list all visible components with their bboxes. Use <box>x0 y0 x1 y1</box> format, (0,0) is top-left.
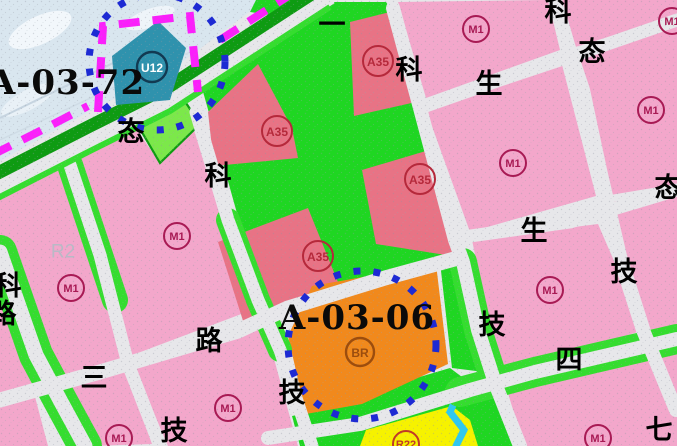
zoning-map: M1M1M1M1M1M1M1M1M1M1A35A35A35A35U12BRR22… <box>0 0 677 446</box>
svg-text:M1: M1 <box>63 283 78 295</box>
svg-text:M1: M1 <box>643 105 658 117</box>
road-name-char-3: 科 <box>545 0 572 27</box>
road-name-char-13: 路 <box>196 325 224 356</box>
svg-text:R22: R22 <box>396 439 416 446</box>
svg-text:BR: BR <box>351 346 369 360</box>
road-name-char-12: 三 <box>81 363 108 393</box>
svg-text:A35: A35 <box>409 173 431 187</box>
svg-text:A35: A35 <box>266 125 288 139</box>
svg-text:A35: A35 <box>367 55 389 69</box>
svg-text:M1: M1 <box>169 231 184 243</box>
road-name-char-9: 技 <box>611 257 638 287</box>
road-name-char-15: 技 <box>279 378 306 408</box>
road-name-char-7: 态 <box>655 173 677 203</box>
faint-labels-layer: R2 <box>51 242 75 263</box>
svg-text:M1: M1 <box>505 158 520 170</box>
road-name-char-6: 科 <box>205 161 232 191</box>
svg-text:M1: M1 <box>220 403 235 415</box>
road-name-char-4: 态 <box>579 37 606 67</box>
road-name-char-11: 路 <box>0 298 18 329</box>
svg-text:M1: M1 <box>664 16 677 28</box>
zoning-map-viewport[interactable]: M1M1M1M1M1M1M1M1M1M1A35A35A35A35U12BRR22… <box>0 0 677 446</box>
svg-text:M1: M1 <box>111 433 126 445</box>
svg-text:M1: M1 <box>590 433 605 445</box>
road-name-char-2: 科 <box>396 55 423 85</box>
zone-callout-a-03-06: A-03-06 <box>278 298 435 338</box>
road-name-char-8: 生 <box>521 216 548 246</box>
svg-text:M1: M1 <box>542 285 557 297</box>
road-name-char-16: 技 <box>479 310 506 340</box>
road-name-char-18: 七 <box>646 415 673 445</box>
road-name-char-5: 生 <box>476 69 503 99</box>
road-name-char-17: 四 <box>556 345 583 375</box>
zone-callout-a-03-72: A-03-72 <box>0 63 145 103</box>
road-name-char-1: 态 <box>118 117 145 147</box>
underlay-label: R2 <box>51 242 75 263</box>
road-name-char-14: 技 <box>161 416 188 446</box>
road-name-char-0: 一 <box>319 10 346 40</box>
svg-text:M1: M1 <box>468 24 483 36</box>
svg-text:A35: A35 <box>307 250 329 264</box>
road-name-char-10: 科 <box>0 271 22 301</box>
